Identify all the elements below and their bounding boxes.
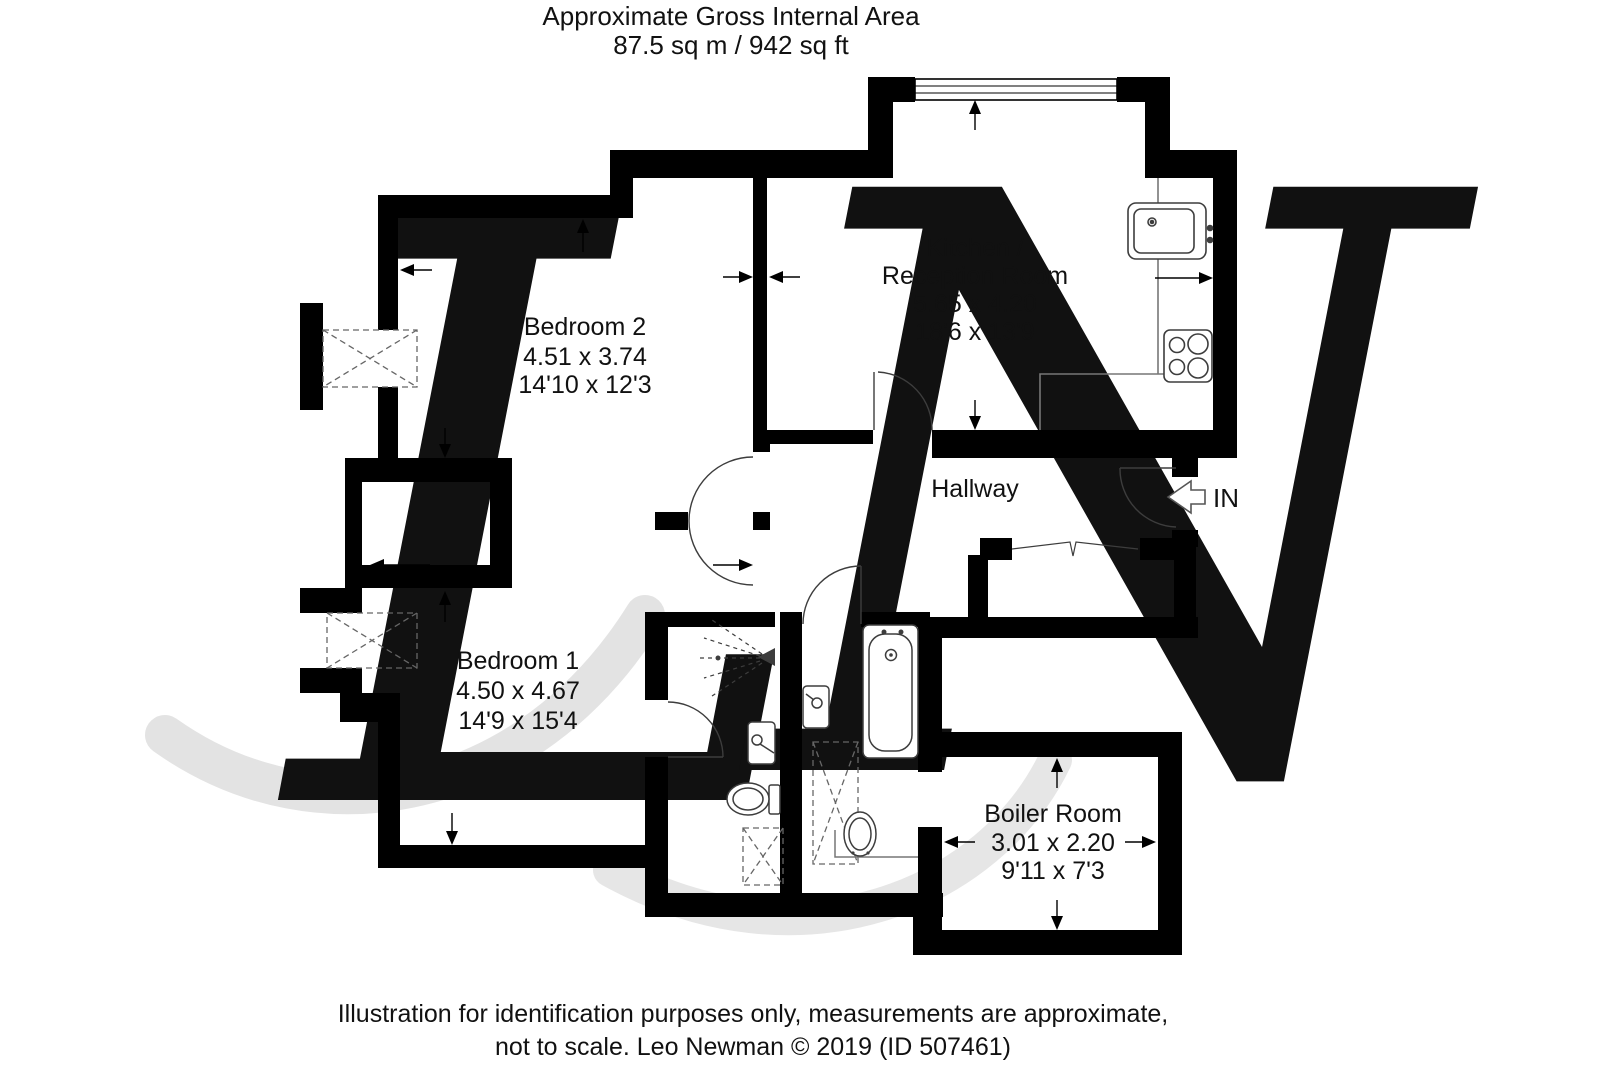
toilet-icon-left-bath: [727, 783, 780, 815]
floorplan-page: L N: [0, 0, 1597, 1080]
sink-icon-right-bath: [803, 686, 829, 728]
boiler-metric: 3.01 x 2.20: [991, 829, 1115, 857]
bedroom1-name: Bedroom 1: [457, 647, 579, 675]
hallway-name: Hallway: [931, 475, 1019, 503]
kitchen-name-line1: Kitchen /: [926, 234, 1023, 262]
label-bedroom1: Bedroom 1 4.50 x 4.67 14'9 x 15'4: [456, 647, 580, 735]
kitchen-name-line2: Reception Room: [882, 262, 1068, 290]
footer-disclaimer-line2: not to scale. Leo Newman © 2019 (ID 5074…: [495, 1033, 1011, 1061]
kitchen-imperial: 18'6 x 13'9: [915, 318, 1034, 346]
bedroom2-imperial: 14'10 x 12'3: [518, 371, 651, 399]
bedroom1-imperial: 14'9 x 15'4: [458, 707, 577, 735]
sink-icon-left-bath: [748, 722, 775, 764]
kitchen-metric: 5.65 x 4.20: [913, 290, 1037, 318]
boiler-name: Boiler Room: [984, 800, 1122, 828]
footer-disclaimer-line1: Illustration for identification purposes…: [338, 1000, 1169, 1028]
floorplan-svg: L N: [0, 0, 1597, 1080]
bedroom1-metric: 4.50 x 4.67: [456, 677, 580, 705]
hob-icon: [1164, 330, 1212, 382]
bathtub-icon: [863, 625, 918, 758]
bedroom2-metric: 4.51 x 3.74: [523, 343, 647, 371]
page-subtitle: 87.5 sq m / 942 sq ft: [613, 30, 849, 60]
bedroom2-name: Bedroom 2: [524, 313, 646, 341]
boiler-imperial: 9'11 x 7'3: [1001, 857, 1105, 885]
page-title: Approximate Gross Internal Area: [542, 1, 920, 31]
entrance-label: IN: [1213, 483, 1239, 513]
label-boiler: Boiler Room 3.01 x 2.20 9'11 x 7'3: [984, 800, 1122, 885]
kitchen-sink-icon: [1128, 203, 1213, 259]
label-bedroom2: Bedroom 2 4.51 x 3.74 14'10 x 12'3: [518, 313, 651, 399]
window-icon: [915, 79, 1117, 100]
